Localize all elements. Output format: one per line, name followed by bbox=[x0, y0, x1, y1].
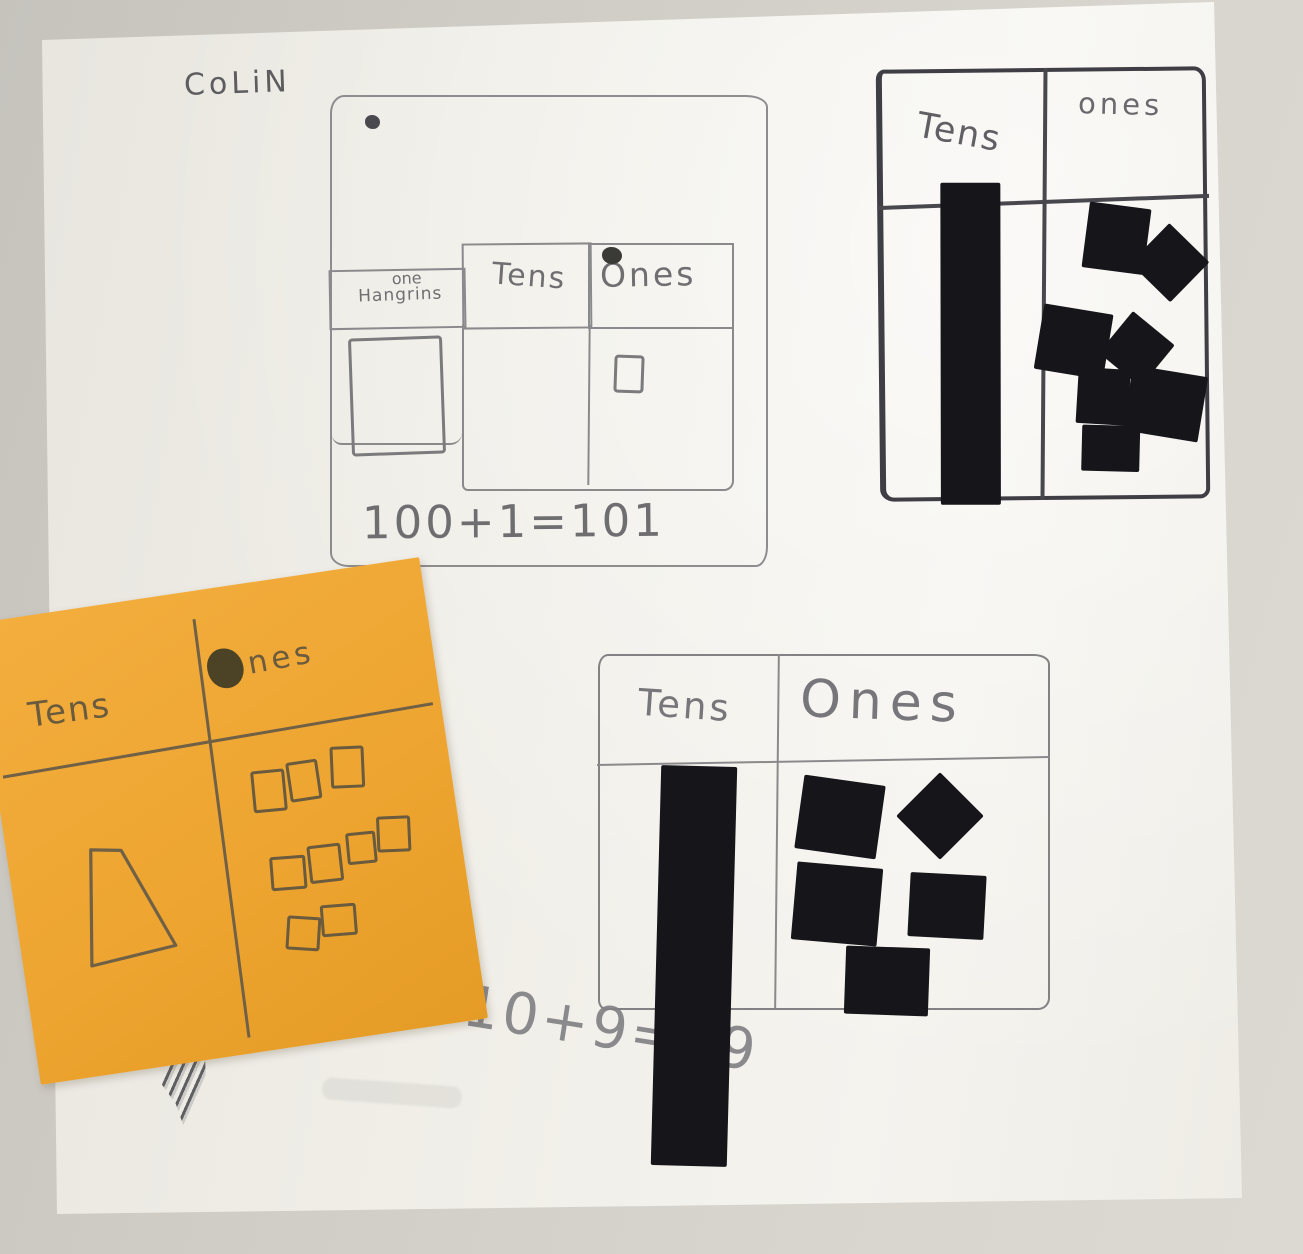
drawn-ones-squares-container bbox=[0, 557, 488, 1085]
black-ones-square bbox=[791, 861, 883, 946]
one-square-drawing bbox=[613, 354, 644, 393]
drawn-one-square bbox=[376, 815, 412, 852]
photo-of-worksheet: CoLiN one Hangrins Tens Ones 100+1=101 T… bbox=[0, 0, 1303, 1254]
black-ones-square bbox=[794, 775, 886, 860]
drawn-one-square bbox=[306, 843, 344, 885]
bottom-tens-ones-chart: Tens Ones bbox=[598, 654, 1050, 1010]
drawn-one-square bbox=[269, 855, 308, 892]
ones-squares-container bbox=[600, 656, 1048, 1008]
black-ones-square bbox=[1081, 425, 1140, 472]
orange-sticky-note: Tens nes bbox=[0, 557, 488, 1085]
black-ones-square bbox=[1076, 367, 1131, 426]
student-name: CoLiN bbox=[183, 64, 291, 103]
drawn-one-square bbox=[345, 831, 378, 866]
hundreds-tens-ones-chart: one Hangrins Tens Ones 100+1=101 bbox=[330, 95, 768, 567]
drawn-one-square bbox=[320, 903, 358, 938]
ones-squares-container bbox=[882, 70, 1206, 497]
drawn-one-square bbox=[285, 915, 321, 951]
black-ones-square bbox=[907, 872, 986, 940]
drawn-one-square bbox=[329, 745, 365, 788]
equation-100-plus-1: 100+1=101 bbox=[362, 494, 665, 550]
drawn-one-square bbox=[285, 758, 323, 802]
drawn-one-square bbox=[250, 768, 288, 813]
black-ones-square bbox=[844, 946, 930, 1017]
black-ones-square bbox=[896, 772, 984, 860]
top-right-tens-ones-chart: Tens ones bbox=[876, 66, 1211, 501]
student-name-text: CoLiN bbox=[183, 64, 291, 103]
